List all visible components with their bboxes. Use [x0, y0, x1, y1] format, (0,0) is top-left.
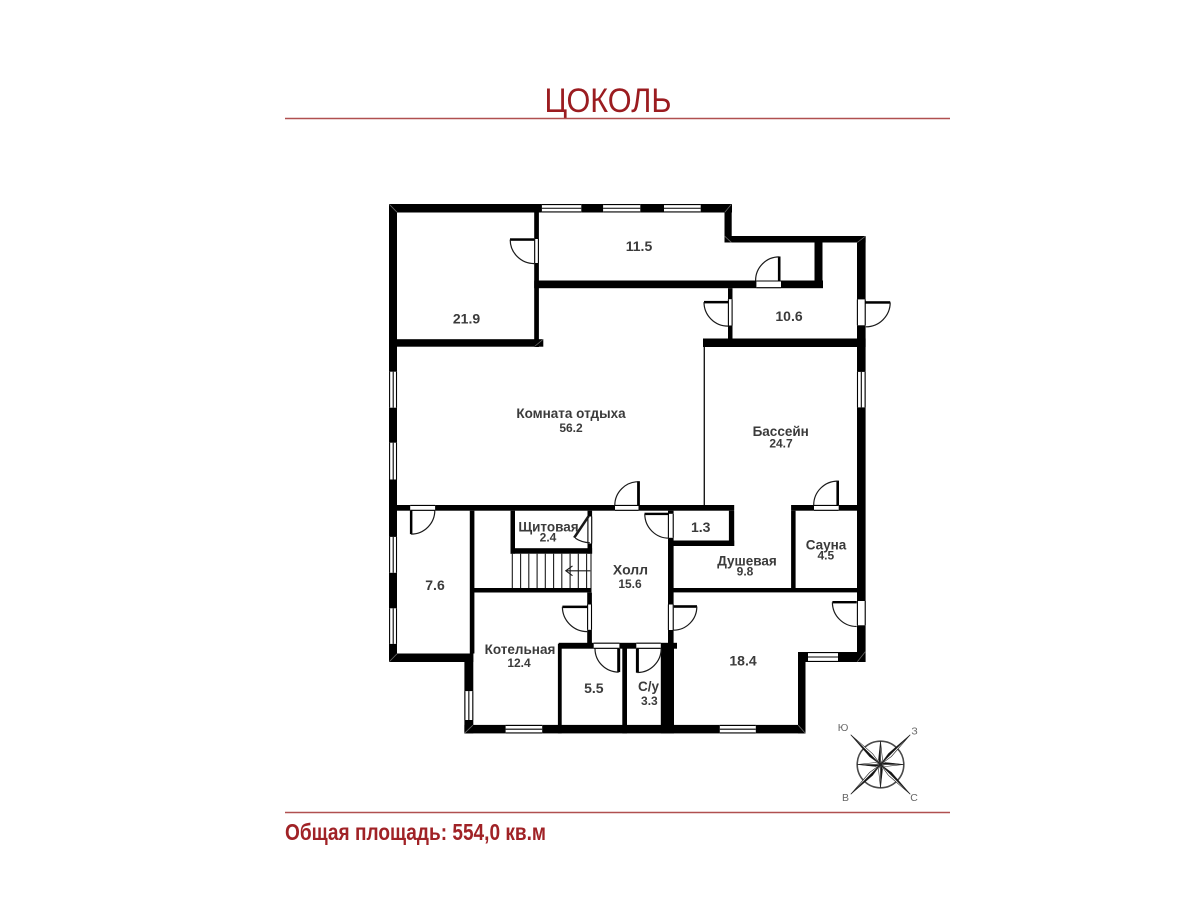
svg-text:Ю: Ю: [838, 722, 849, 734]
svg-text:В: В: [842, 792, 849, 804]
svg-text:18.4: 18.4: [729, 653, 756, 669]
svg-text:2.4: 2.4: [540, 531, 557, 545]
svg-text:ЦОКОЛЬ: ЦОКОЛЬ: [545, 82, 672, 120]
svg-text:11.5: 11.5: [626, 238, 653, 254]
svg-text:С/у: С/у: [638, 679, 660, 694]
svg-text:5.5: 5.5: [584, 680, 604, 696]
svg-text:С: С: [910, 792, 918, 804]
svg-text:Комната отдыха: Комната отдыха: [516, 406, 626, 421]
svg-text:21.9: 21.9: [453, 311, 480, 327]
svg-text:3.3: 3.3: [641, 694, 658, 708]
svg-text:15.6: 15.6: [618, 577, 642, 591]
svg-text:1.3: 1.3: [691, 519, 711, 535]
svg-text:9.8: 9.8: [737, 565, 754, 579]
svg-text:Общая площадь: 554,0 кв.м: Общая площадь: 554,0 кв.м: [285, 819, 546, 845]
svg-text:12.4: 12.4: [507, 656, 531, 670]
svg-text:Холл: Холл: [613, 562, 648, 578]
svg-text:7.6: 7.6: [425, 577, 445, 593]
svg-text:З: З: [911, 726, 917, 738]
svg-text:24.7: 24.7: [769, 437, 793, 451]
svg-text:10.6: 10.6: [775, 308, 802, 324]
svg-text:Котельная: Котельная: [485, 642, 556, 657]
svg-text:4.5: 4.5: [817, 549, 834, 563]
svg-text:56.2: 56.2: [559, 421, 583, 435]
